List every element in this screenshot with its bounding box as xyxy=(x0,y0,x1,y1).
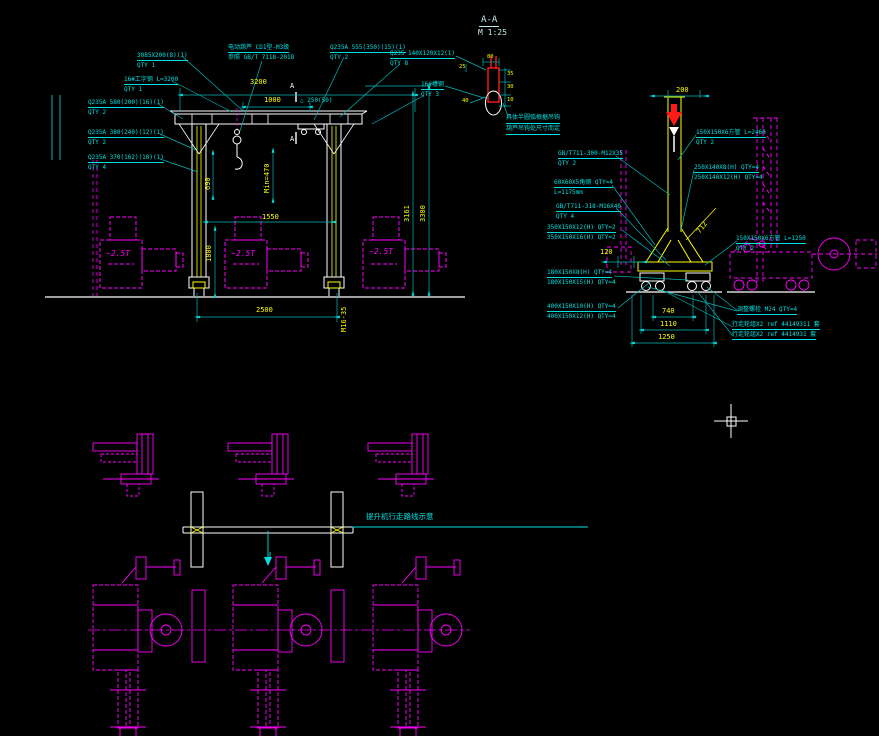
label-tube-1250: 150X150X6方管 L=1250QTY 2 xyxy=(736,234,806,253)
detail-dim-diag: 40 xyxy=(462,98,469,104)
label-angle-60: 60X60X5角钢 QTY=4L=1175mm xyxy=(554,178,613,197)
label-wheel-ref: 行走轮组X2 ref 44149311 套行走轮组X2 ref 4414931 … xyxy=(732,320,820,340)
dim-1800: 1800 xyxy=(205,245,213,262)
detail-dim-r2: 30 xyxy=(507,84,514,90)
load-mark-1: ~2.5T xyxy=(106,249,130,258)
dim-3200: 3200 xyxy=(250,78,267,86)
route-note: 提升机行走路线示意 xyxy=(366,512,434,521)
detail-dim-r3: 10 xyxy=(507,97,514,103)
dim-2500: 2500 xyxy=(256,306,273,314)
dim-1250: 1250 xyxy=(658,333,675,341)
label-plate-140: Q235 140X120X12(1)QTY 8 xyxy=(390,49,455,68)
detail-note-2: 葫芦吊钩处尺寸而定 xyxy=(506,124,560,135)
label-bolt-m16: GB/T711-318-M16X40QTY 4 xyxy=(556,202,621,221)
detail-dim-top: 80 xyxy=(487,54,494,60)
crosshair-cursor xyxy=(714,404,748,438)
dim-min470: Min=470 xyxy=(263,163,271,193)
label-bolt-m24: 调整螺栓 M24 QTY=4 xyxy=(737,305,797,315)
detail-title: A-A xyxy=(479,15,499,27)
section-letter-top: A xyxy=(290,82,294,90)
section-letter-bottom: A xyxy=(290,135,294,143)
detail-dim-left: 25 xyxy=(459,64,466,70)
label-plate-380: Q235A 380(240)(12)(1)QTY 2 xyxy=(88,128,164,147)
label-top-plate: 3085X200(8)(1)QTY 1 xyxy=(137,51,188,70)
dim-200: 200 xyxy=(676,86,689,94)
dim-1110: 1110 xyxy=(660,320,677,328)
label-plate-350: 350X150X12(H) QTY=2350X150X16(H) QTY=2 xyxy=(547,223,616,242)
detail-scale: M 1:25 xyxy=(478,28,507,37)
label-hoist: 电动葫芦 CD1型-M3级参照 GB/T 7118-2018 xyxy=(228,43,294,62)
label-plate-370: Q235A 370(162)(10)(1)QTY 4 xyxy=(88,153,164,172)
detail-dim-r1: 35 xyxy=(507,71,514,77)
cad-canvas[interactable]: 3085X200(8)(1)QTY 1 16#工字钢 L=3200QTY 1 Q… xyxy=(0,0,879,736)
dim-1000: 1000 xyxy=(264,96,281,104)
label-channel: 16#槽钢QTY 3 xyxy=(421,80,444,99)
dim-120: 120 xyxy=(600,248,613,256)
label-plate-400: 400X150X10(H) QTY=4400X150X12(H) QTY=4 xyxy=(547,302,616,321)
section-detail xyxy=(466,56,511,116)
load-mark-2: ~2.5T xyxy=(231,249,255,258)
dim-740: 740 xyxy=(662,307,675,315)
label-plate-250: 250X140X8(H) QTY=4250X140X12(H) QTY=4 xyxy=(694,163,763,182)
label-bolt-m12: GB/T711-300-M12X35QTY 2 xyxy=(558,149,623,168)
label-plate-180: 180X150X8(H) QTY=4180X150X15(H) QTY=4 xyxy=(547,268,616,287)
dim-bolt-m16: M16-35 xyxy=(340,307,348,332)
dim-3300: 3300 xyxy=(419,205,427,222)
plan-view xyxy=(88,434,588,736)
dim-1550: 1550 xyxy=(262,213,279,221)
dim-3161: 3161 xyxy=(403,205,411,222)
label-ibeam: 16#工字钢 L=3200QTY 1 xyxy=(124,75,178,94)
detail-note-1: 具体半圆弧根据吊钩 xyxy=(506,113,560,124)
dim-plate-250: △ 250(50) xyxy=(300,97,333,105)
dim-690: 690 xyxy=(204,177,212,190)
label-tube-2460: 150X150X6方管 L=2460QTY 2 xyxy=(696,128,766,147)
load-mark-3: ~2.5T xyxy=(369,247,393,256)
label-plate-580: Q235A 580(200)(16)(1)QTY 2 xyxy=(88,98,164,117)
